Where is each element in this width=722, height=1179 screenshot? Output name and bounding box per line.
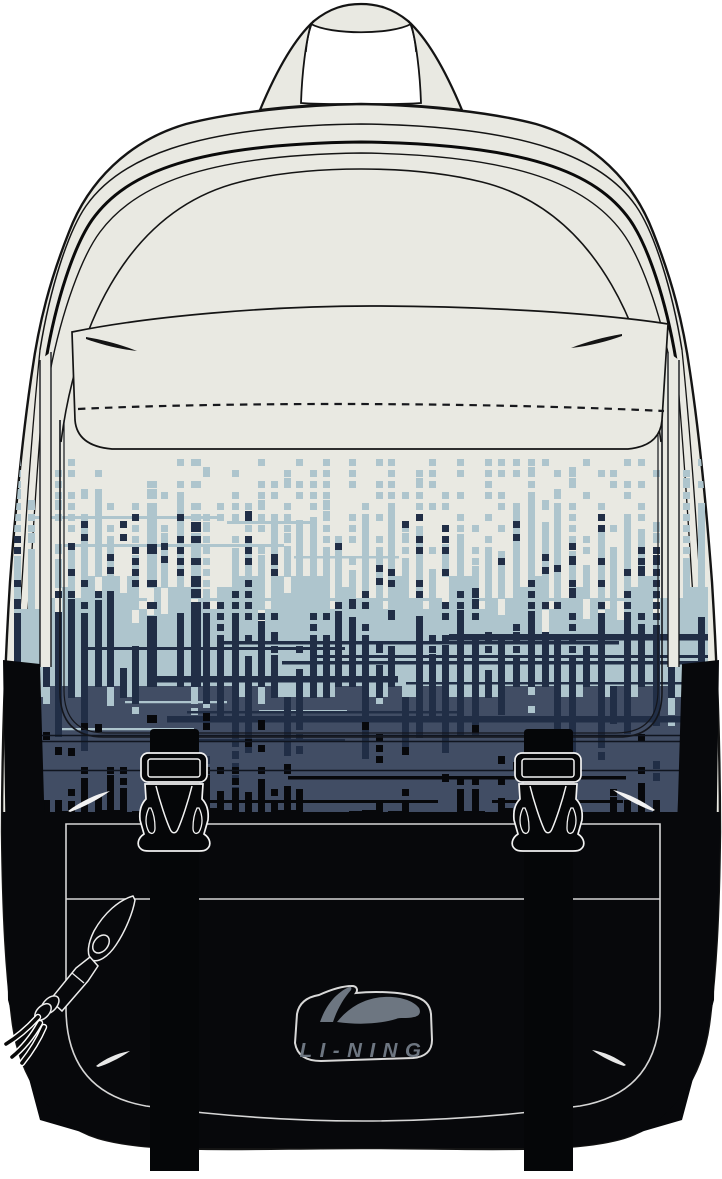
svg-text:LI-NING: LI-NING (300, 1039, 429, 1062)
